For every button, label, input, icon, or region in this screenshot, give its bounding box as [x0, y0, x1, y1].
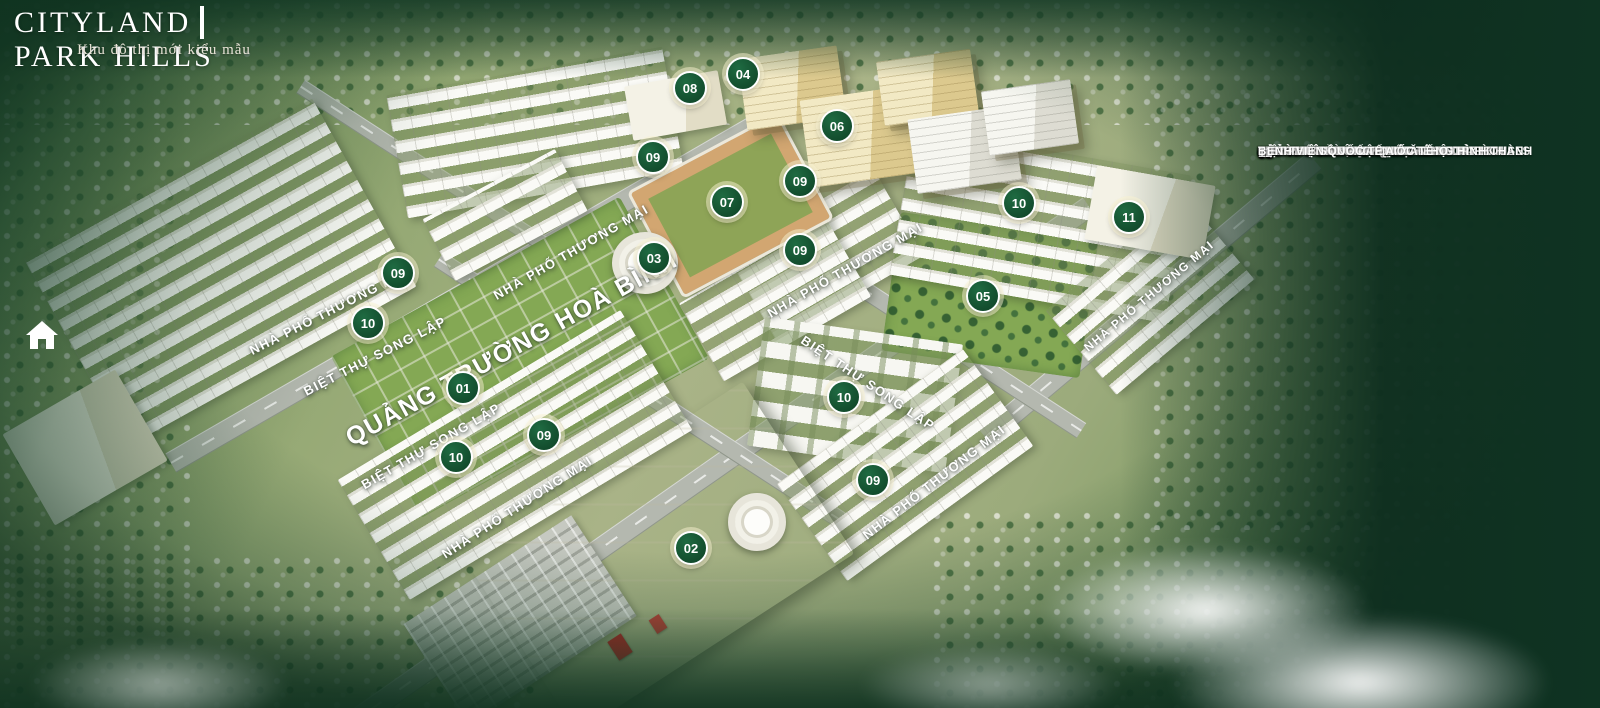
- map-marker-10[interactable]: 10: [439, 440, 473, 474]
- brand-divider: [200, 6, 204, 39]
- map-marker-09[interactable]: 09: [856, 463, 890, 497]
- home-icon: [24, 318, 60, 352]
- map-marker-09[interactable]: 09: [381, 256, 415, 290]
- legend-item-label: BỆNH VIỆN QUỐC TẾ: [1258, 146, 1383, 158]
- map-marker-06[interactable]: 06: [820, 109, 854, 143]
- map-marker-10[interactable]: 10: [1002, 186, 1036, 220]
- masterplan-page: NHÀ PHỐ THƯƠNG MẠIBIỆT THỰ SONG LẬPNHÀ P…: [0, 0, 1600, 708]
- map-marker-05[interactable]: 05: [966, 279, 1000, 313]
- home-button[interactable]: [24, 318, 60, 352]
- map-marker-08[interactable]: 08: [673, 71, 707, 105]
- map-marker-01[interactable]: 01: [446, 371, 480, 405]
- map-marker-10[interactable]: 10: [827, 380, 861, 414]
- map-marker-11[interactable]: 11: [1112, 200, 1146, 234]
- map-marker-09[interactable]: 09: [527, 418, 561, 452]
- brand-name-left: CITYLAND: [14, 6, 191, 40]
- map-marker-02[interactable]: 02: [674, 531, 708, 565]
- map-marker-10[interactable]: 10: [351, 306, 385, 340]
- map-marker-09[interactable]: 09: [783, 164, 817, 198]
- brand-logo: CITYLANDPARK HILLS Khu đô thị mới kiểu m…: [14, 6, 324, 64]
- map-marker-09[interactable]: 09: [636, 140, 670, 174]
- map-marker-03[interactable]: 03: [637, 241, 671, 275]
- map-marker-09[interactable]: 09: [783, 233, 817, 267]
- brand-tagline: Khu đô thị mới kiểu mẫu: [14, 42, 314, 59]
- map-marker-04[interactable]: 04: [726, 57, 760, 91]
- map-marker-07[interactable]: 07: [710, 185, 744, 219]
- map-markers-layer: 08040609090710110903090510011009100902: [0, 0, 1600, 708]
